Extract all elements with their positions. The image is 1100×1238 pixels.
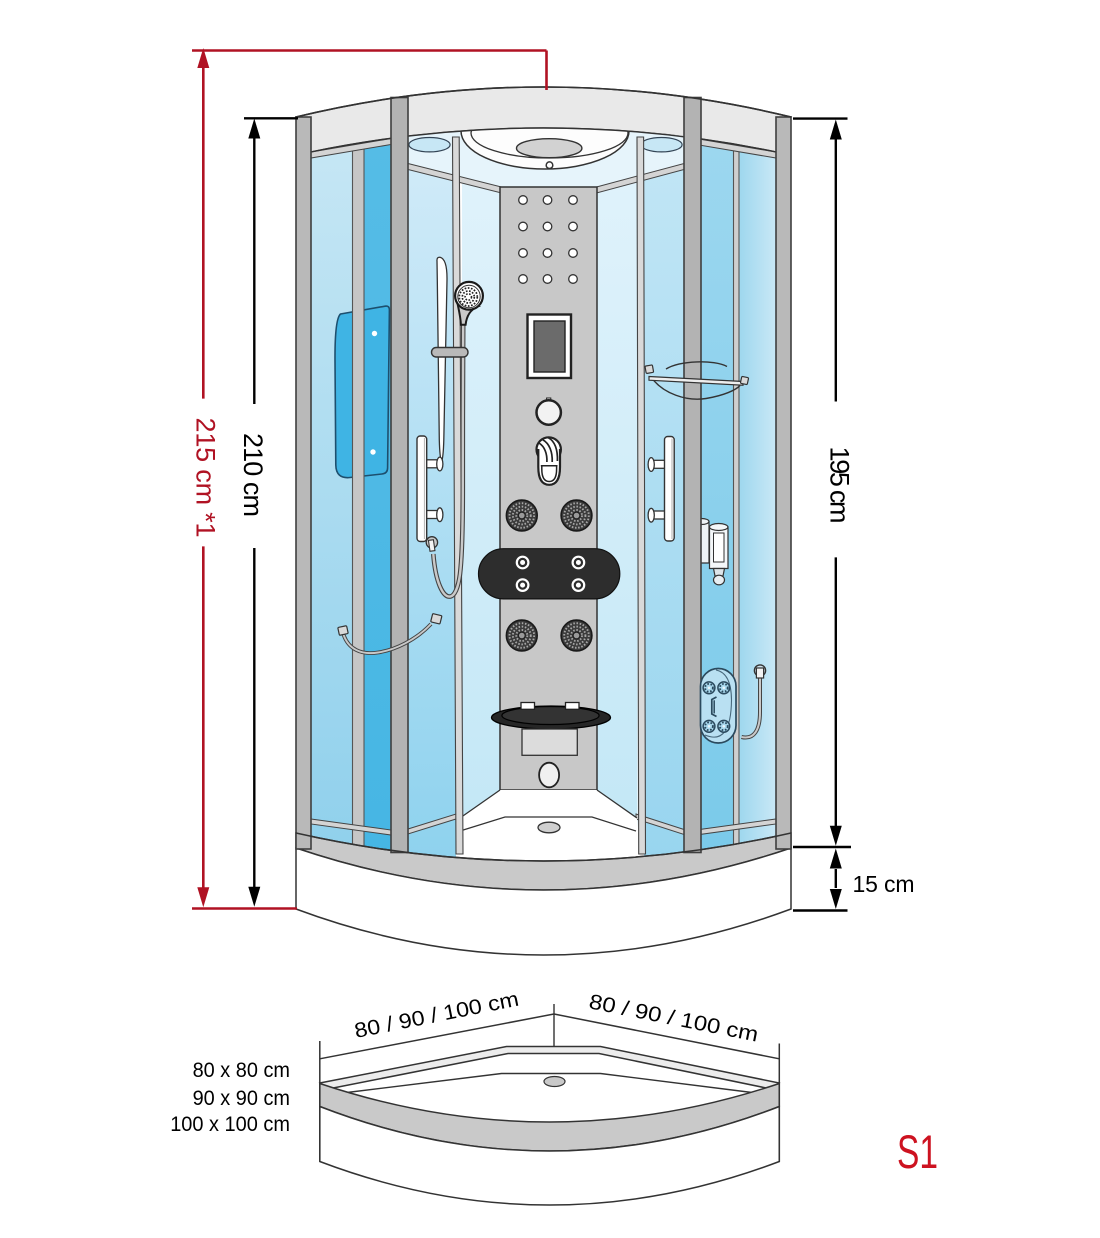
svg-text:S1: S1	[897, 1125, 938, 1178]
svg-text:90 x 90 cm: 90 x 90 cm	[193, 1086, 290, 1110]
svg-text:100 x 100 cm: 100 x 100 cm	[170, 1112, 290, 1136]
svg-text:195 cm: 195 cm	[824, 447, 854, 524]
svg-text:80 x 80 cm: 80 x 80 cm	[193, 1058, 290, 1082]
svg-text:15 cm: 15 cm	[853, 871, 915, 897]
svg-text:210 cm: 210 cm	[238, 433, 268, 517]
svg-text:215 cm *1: 215 cm *1	[190, 418, 220, 538]
